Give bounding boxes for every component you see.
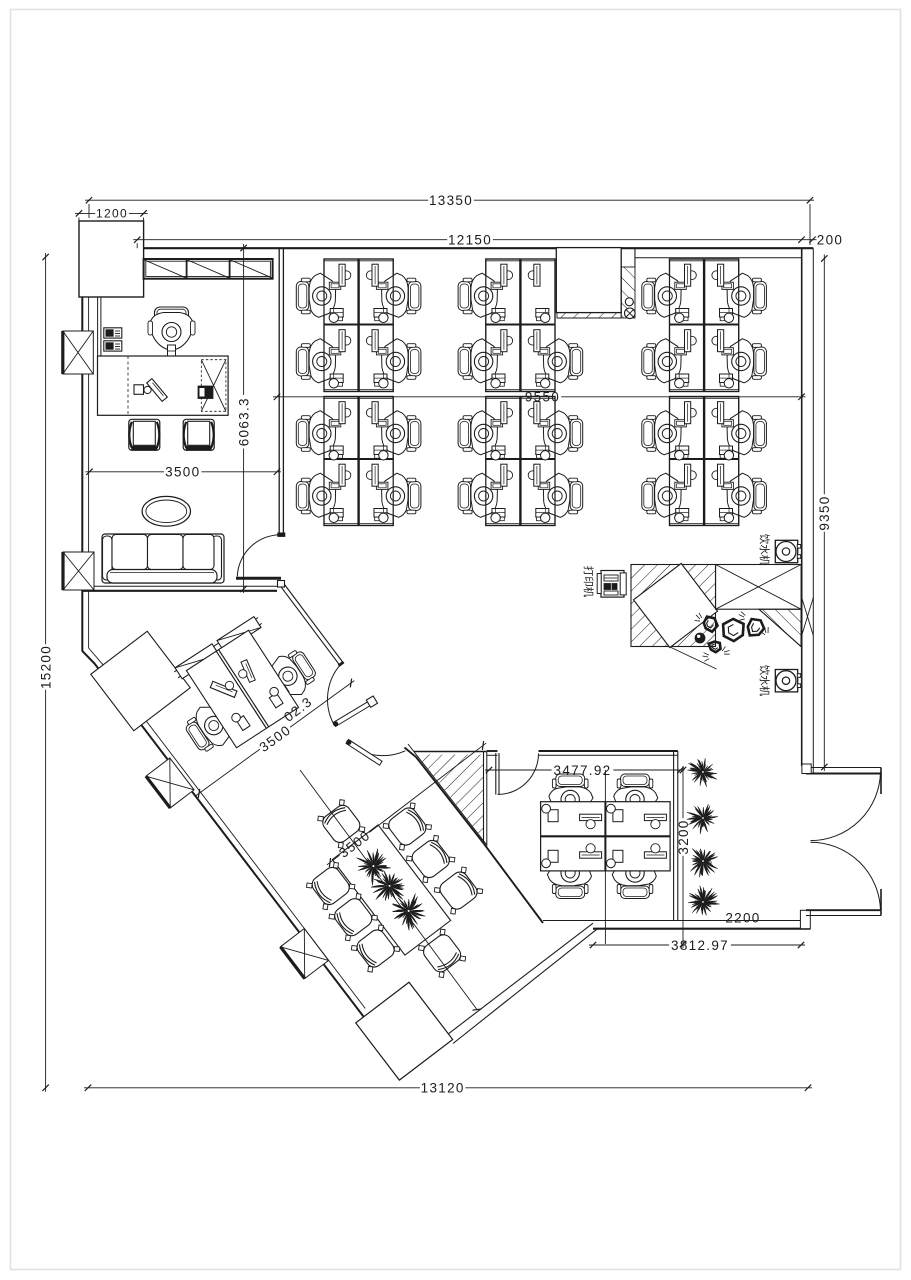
svg-text:打印机: 打印机 (582, 566, 595, 598)
svg-text:9350: 9350 (817, 495, 832, 530)
svg-text:3500: 3500 (165, 465, 200, 480)
svg-text:3812.97: 3812.97 (671, 938, 729, 953)
svg-text:饮水机: 饮水机 (758, 665, 771, 697)
svg-text:1200: 1200 (96, 207, 128, 221)
svg-text:15200: 15200 (39, 645, 54, 689)
svg-text:12150: 12150 (448, 233, 492, 248)
svg-text:饮水机: 饮水机 (758, 534, 771, 566)
svg-text:3477.92: 3477.92 (554, 763, 612, 778)
svg-text:13120: 13120 (421, 1081, 465, 1096)
svg-text:200: 200 (817, 233, 843, 248)
svg-text:9550: 9550 (525, 390, 560, 405)
svg-text:2200: 2200 (725, 911, 760, 926)
svg-text:13350: 13350 (429, 193, 473, 208)
svg-text:6063.3: 6063.3 (237, 397, 252, 446)
svg-text:3200: 3200 (676, 819, 691, 854)
